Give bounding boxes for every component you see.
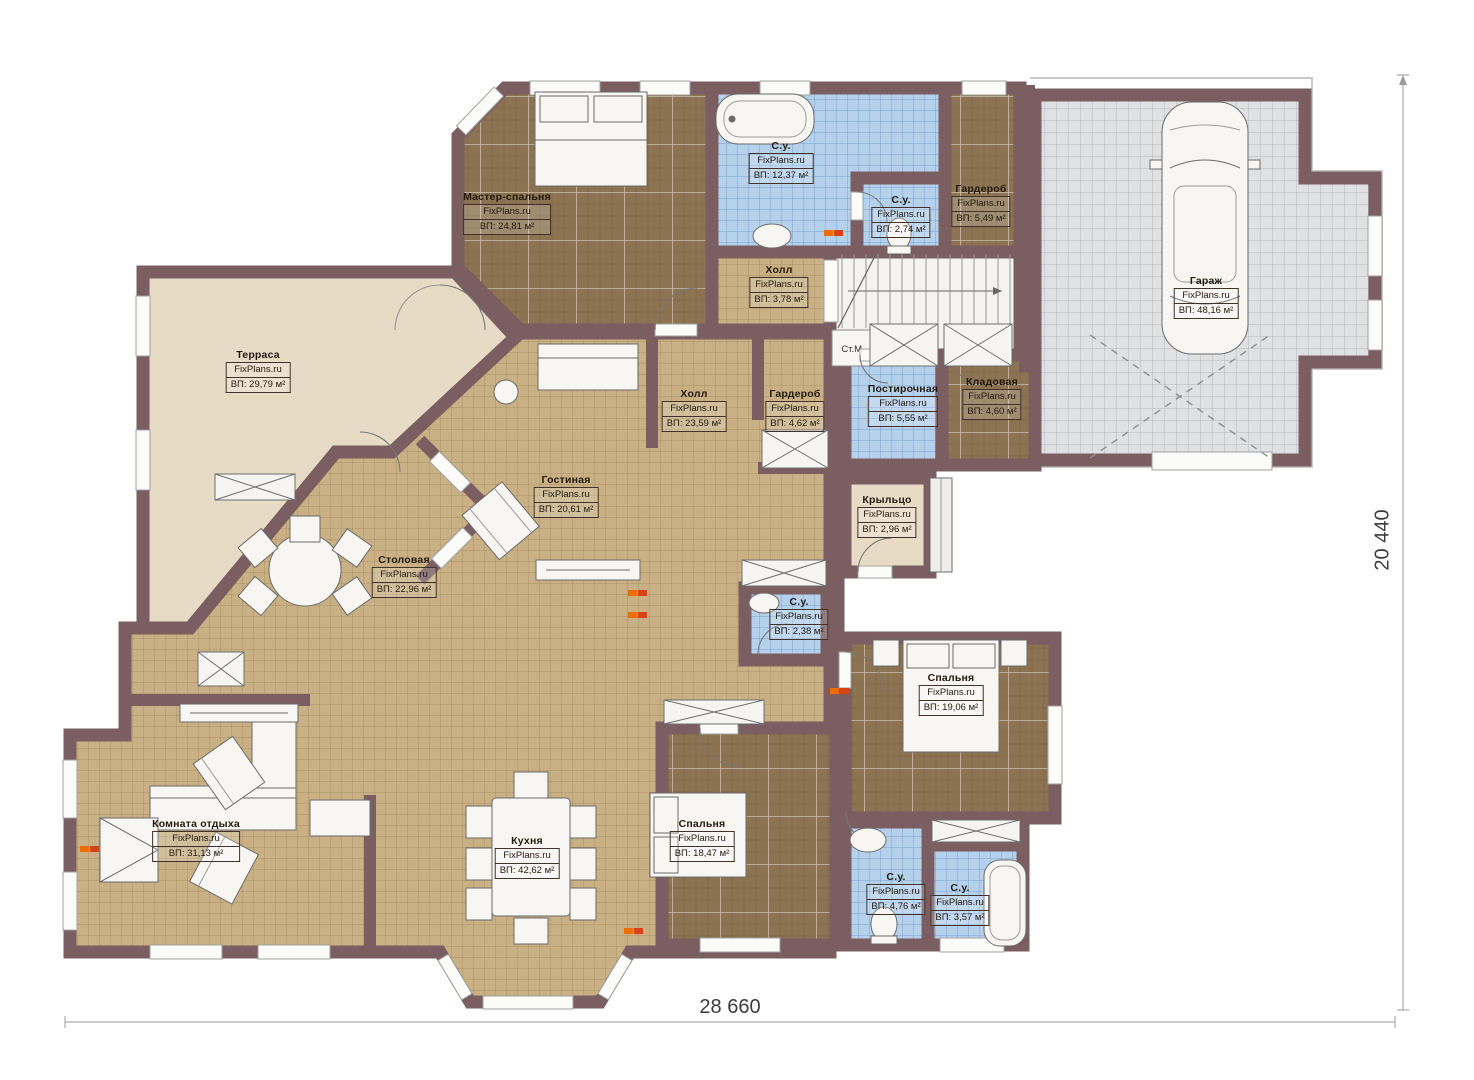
dimension-height: 20 440 (1372, 509, 1395, 570)
room-label-bathroom-4: С.у. FixPlans.ru ВП: 4,76 м² (866, 871, 925, 915)
window-icon (483, 996, 573, 1009)
room-label-wardrobe-2: Гардероб FixPlans.ru ВП: 4,62 м² (765, 388, 824, 432)
window-icon (136, 430, 150, 490)
entrance-door (858, 566, 892, 578)
room-label-bedroom-2: Спальня FixPlans.ru ВП: 18,47 м² (670, 818, 735, 862)
coffee-table-icon (310, 800, 370, 836)
bathtub-icon (984, 860, 1026, 946)
closet-icon (944, 324, 1012, 366)
room-label-laundry: Постирочная FixPlans.ru ВП: 5,55 м² (868, 383, 938, 427)
room-label-porch: Крыльцо FixPlans.ru ВП: 2,96 м² (857, 494, 916, 538)
room-label-bathroom-1: С.у. FixPlans.ru ВП: 12,37 м² (749, 140, 814, 184)
room-label-master-bedroom: Мастер-спальня FixPlans.ru ВП: 24,81 м² (463, 191, 551, 235)
closet-icon (932, 820, 1020, 842)
door-opening (839, 652, 851, 688)
window-icon (962, 81, 1006, 95)
window-icon (63, 872, 77, 930)
window-icon (1368, 216, 1382, 276)
sofa-icon (538, 344, 638, 390)
window-icon (63, 760, 77, 818)
opening (824, 260, 838, 322)
closet-icon (664, 700, 764, 724)
door-opening (851, 192, 863, 220)
tv-console-icon (536, 560, 640, 580)
room-label-hall-main: Холл FixPlans.ru ВП: 23,59 м² (662, 388, 727, 432)
window-icon (258, 945, 330, 959)
closet-icon (198, 652, 244, 686)
closet-icon (762, 430, 828, 468)
window-icon (150, 945, 222, 959)
door-opening (655, 324, 697, 336)
floor-plan-drawing: Ст.М. (0, 0, 1474, 1080)
room-label-bathroom-5: С.у. FixPlans.ru ВП: 3,57 м² (930, 882, 989, 926)
bed-icon (535, 92, 647, 186)
floor-plan: Ст.М. (0, 0, 1474, 1080)
room-label-terrace: Терраса FixPlans.ru ВП: 29,79 м² (226, 349, 291, 393)
sink-icon (753, 224, 791, 248)
room-label-living-room: Гостиная FixPlans.ru ВП: 20,61 м² (534, 474, 599, 518)
room-label-garage: Гараж FixPlans.ru ВП: 48,16 м² (1174, 275, 1239, 319)
console-table-icon (180, 704, 298, 722)
room-label-kitchen: Кухня FixPlans.ru ВП: 42,62 м² (495, 835, 560, 879)
room-label-lounge: Комната отдыха FixPlans.ru ВП: 31,13 м² (152, 818, 240, 862)
room-label-bathroom-3: С.у. FixPlans.ru ВП: 2,38 м² (769, 596, 828, 640)
room-label-pantry: Кладовая FixPlans.ru ВП: 4,60 м² (962, 376, 1021, 420)
room-label-bathroom-2: С.у. FixPlans.ru ВП: 2,74 м² (871, 194, 930, 238)
room-label-wardrobe-1: Гардероб FixPlans.ru ВП: 5,49 м² (951, 183, 1010, 227)
fireplace-icon (100, 818, 158, 882)
porch-steps (930, 478, 952, 572)
sink-icon (850, 828, 886, 852)
garage-door-icon (1152, 452, 1272, 470)
window-icon (700, 938, 780, 952)
window-icon (136, 296, 150, 356)
closet-icon (215, 474, 295, 500)
window-icon (760, 81, 810, 95)
bathtub-icon (716, 94, 814, 144)
wardrobe-1-floor (945, 88, 1020, 252)
closet-icon (742, 560, 826, 586)
dimension-width: 28 660 (699, 996, 760, 1019)
room-label-dining-room: Столовая FixPlans.ru ВП: 22,96 м² (372, 554, 437, 598)
room-label-bedroom-1: Спальня FixPlans.ru ВП: 19,06 м² (919, 672, 984, 716)
side-table-icon (494, 380, 518, 404)
closet-icon (870, 324, 938, 366)
window-icon (1048, 706, 1062, 784)
room-label-hall-small: Холл FixPlans.ru ВП: 3,78 м² (749, 264, 808, 308)
door-icon (1368, 300, 1382, 350)
